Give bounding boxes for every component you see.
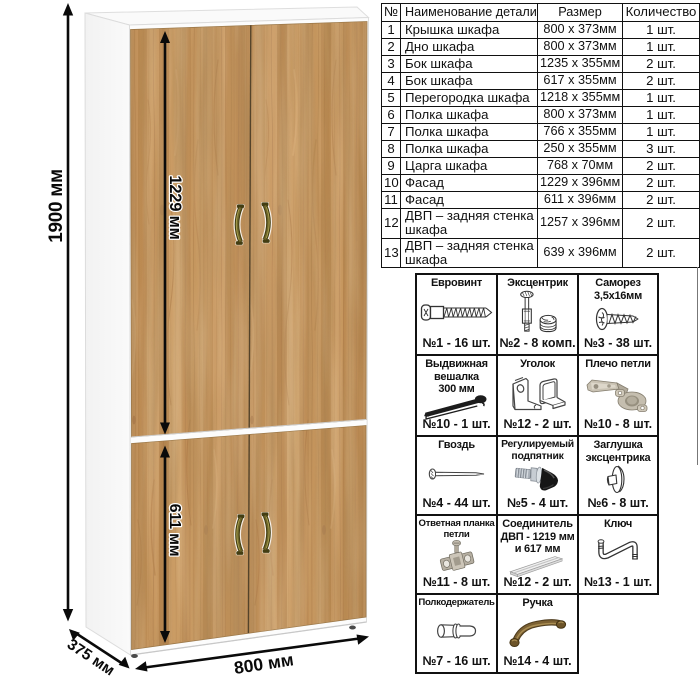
svg-text:1900 мм: 1900 мм <box>46 169 67 243</box>
svg-text:611 мм: 611 мм <box>166 504 183 557</box>
svg-text:1229 мм: 1229 мм <box>166 175 184 239</box>
